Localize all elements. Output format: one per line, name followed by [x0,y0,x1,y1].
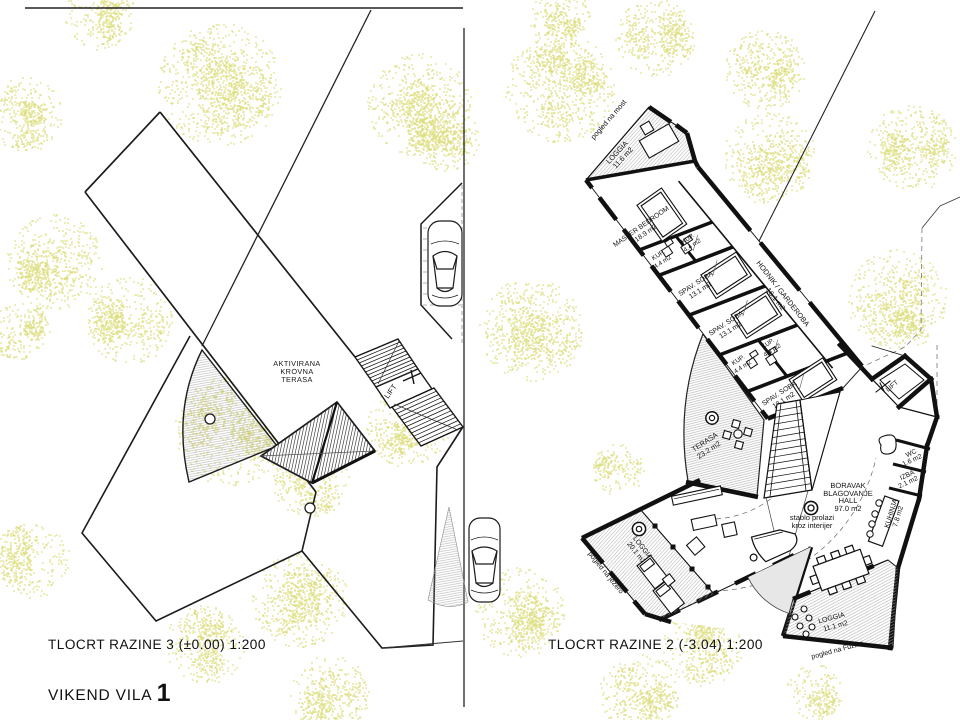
svg-text:97.0 m2: 97.0 m2 [834,504,861,513]
svg-text:TLOCRT RAZINE 3 (±0.00) 1:200: TLOCRT RAZINE 3 (±0.00) 1:200 [48,637,266,652]
svg-text:kroz interijer: kroz interijer [792,521,833,530]
svg-text:TERASA: TERASA [281,375,313,384]
svg-text:TLOCRT RAZINE 2 (-3.04) 1:200: TLOCRT RAZINE 2 (-3.04) 1:200 [548,637,763,652]
